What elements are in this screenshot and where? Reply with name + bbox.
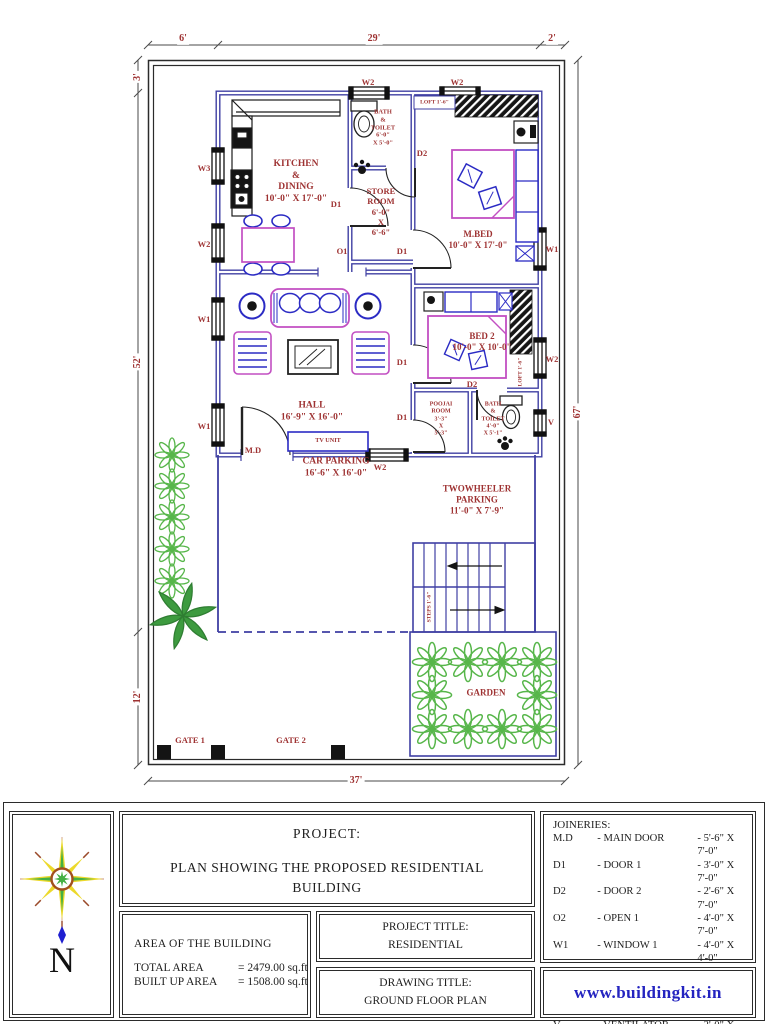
project-title-value: RESIDENTIAL (388, 937, 463, 954)
bed2-furniture (424, 292, 512, 378)
area-row-builtup: BUILT UP AREA= 1508.00 sq.ft (134, 976, 310, 988)
side-plants (144, 438, 222, 657)
dining-table (242, 215, 294, 275)
website-box: www.buildingkit.in (540, 967, 756, 1018)
window-w3-left (212, 148, 224, 184)
drawing-title-label: DRAWING TITLE: (379, 975, 471, 992)
window-w2-right (534, 338, 546, 378)
building-walls (218, 93, 540, 461)
joinery-row: O2- OPEN 1- 4'-0" X 7'-0" (553, 912, 755, 939)
window-w2-bottom (366, 449, 408, 461)
drawing-sheet: 6' 29' 2' 3' 52' 12' 67' 37' KITCHEN & D… (0, 0, 768, 1024)
gate-posts (157, 745, 345, 759)
tv-unit (288, 432, 368, 451)
area-heading: AREA OF THE BUILDING (134, 938, 310, 950)
joinery-row: V- VENTILATOR- 2'-0" X 2'-0" (553, 1019, 755, 1024)
project-box: PROJECT: PLAN SHOWING THE PROPOSED RESID… (119, 811, 535, 907)
drawing-title-box: DRAWING TITLE: GROUND FLOOR PLAN (316, 967, 535, 1018)
compass-rose (10, 812, 111, 1015)
website-link[interactable]: www.buildingkit.in (574, 983, 722, 1003)
joineries-box: JOINERIES: M.D- MAIN DOOR- 5'-6" X 7'-0"… (540, 811, 756, 963)
joinery-row: M.D- MAIN DOOR- 5'-6" X 7'-0" (553, 832, 755, 859)
joineries-heading: JOINERIES: (553, 819, 755, 831)
floor-plan-drawing (0, 0, 768, 800)
joinery-row: D1- DOOR 1- 3'-0" X 7'-0" (553, 859, 755, 886)
kitchen-counter (231, 100, 340, 216)
mbed-furniture (452, 121, 538, 261)
window-w1-left-2 (212, 404, 224, 446)
joinery-row: D2- DOOR 2- 2'-6" X 7'-0" (553, 885, 755, 912)
garden (410, 632, 557, 756)
window-w2-left (212, 224, 224, 262)
parking-and-stairs (218, 455, 535, 632)
project-title-text: PLAN SHOWING THE PROPOSED RESIDENTIAL BU… (147, 858, 507, 897)
ventilator-v-right (534, 410, 546, 436)
project-title-label: PROJECT TITLE: (382, 919, 468, 936)
project-title-box: PROJECT TITLE: RESIDENTIAL (316, 911, 535, 962)
compass-box: N (9, 811, 114, 1018)
window-w1-left-1 (212, 298, 224, 340)
north-letter: N (49, 939, 75, 981)
hall-furniture (234, 289, 389, 451)
joinery-row: W1- WINDOW 1- 4'-0" X 4'-0" (553, 939, 755, 966)
window-w2-top-1 (349, 87, 389, 99)
drawing-title-value: GROUND FLOOR PLAN (364, 993, 487, 1010)
area-row-total: TOTAL AREA= 2479.00 sq.ft (134, 962, 310, 974)
project-heading: PROJECT: (293, 826, 361, 842)
area-box: AREA OF THE BUILDING TOTAL AREA= 2479.00… (119, 911, 311, 1018)
